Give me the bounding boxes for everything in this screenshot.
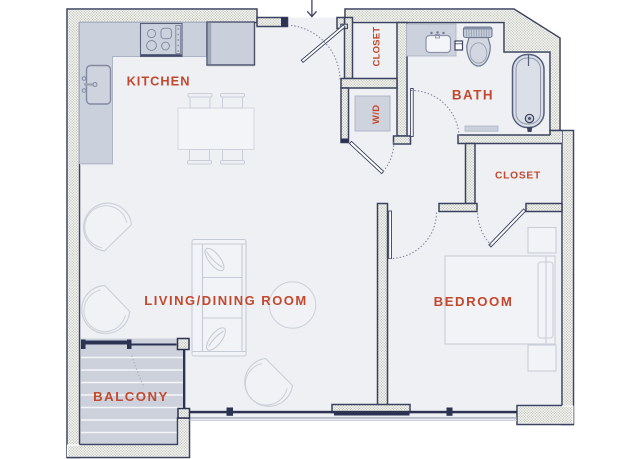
svg-text:KITCHEN: KITCHEN [127,74,191,89]
svg-text:LIVING/DINING ROOM: LIVING/DINING ROOM [144,293,308,308]
svg-text:CLOSET: CLOSET [372,27,383,67]
svg-text:CLOSET: CLOSET [495,170,541,181]
svg-text:BATH: BATH [452,88,494,103]
svg-text:BALCONY: BALCONY [93,389,169,404]
svg-text:BEDROOM: BEDROOM [434,294,514,309]
svg-text:W/D: W/D [371,104,382,124]
